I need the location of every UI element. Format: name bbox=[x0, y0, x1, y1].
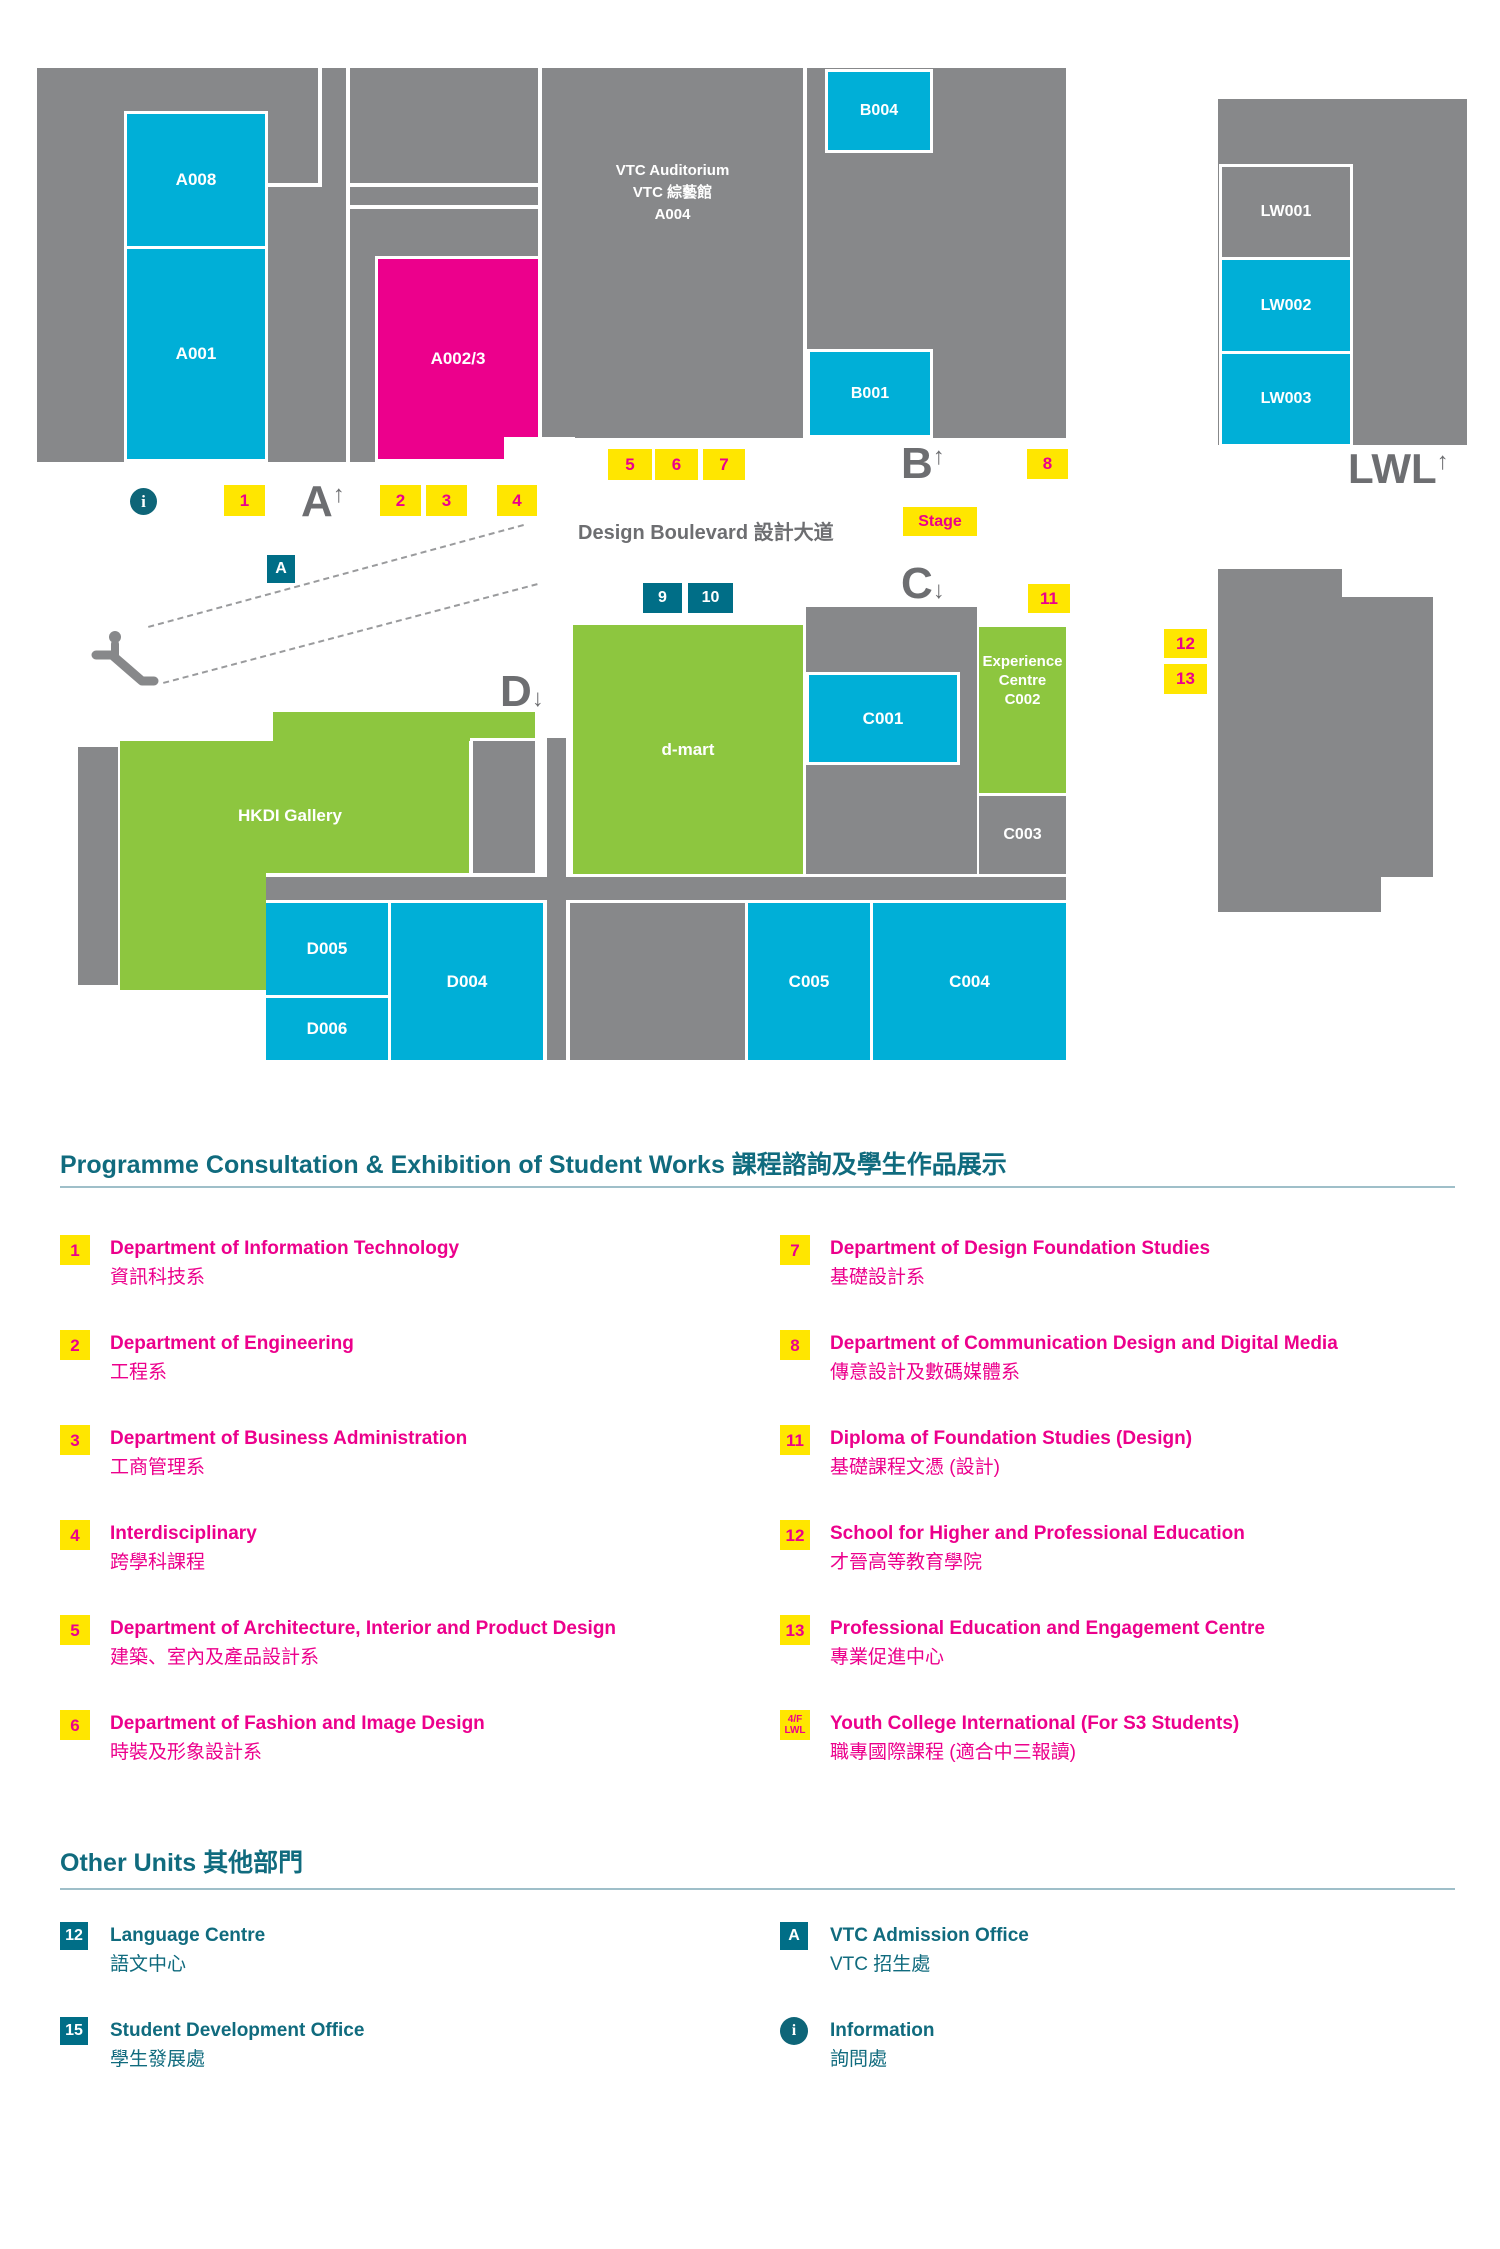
escalator-path-line bbox=[148, 524, 524, 628]
legend-item-name-en: Information bbox=[830, 2018, 1480, 2044]
wall-gap bbox=[538, 68, 542, 438]
map-marker-13: 13 bbox=[1164, 664, 1207, 694]
legend-item: 11 Diploma of Foundation Studies (Design… bbox=[780, 1425, 1480, 1520]
legend-item-name-zh: 建築、室內及產品設計系 bbox=[110, 1645, 760, 1671]
legend-item-name-zh: 基礎課程文憑 (設計) bbox=[830, 1455, 1480, 1481]
room-lw002: LW002 bbox=[1222, 260, 1350, 351]
room-c001: C001 bbox=[809, 675, 957, 762]
room-c002-experience-centre: Experience Centre C002 bbox=[979, 627, 1066, 793]
legend-item-badge: 15 bbox=[60, 2017, 88, 2045]
legend-item-name-en: Department of Communication Design and D… bbox=[830, 1331, 1480, 1357]
legend-item: i Information 詢問處 bbox=[780, 2017, 1480, 2112]
map-marker-5: 5 bbox=[608, 449, 652, 480]
corridor-horizontal bbox=[266, 877, 1066, 900]
map-marker-7: 7 bbox=[703, 449, 745, 480]
legend-item: 13 Professional Education and Engagement… bbox=[780, 1615, 1480, 1710]
legend-item-badge: 2 bbox=[60, 1330, 90, 1360]
legend-item: 8 Department of Communication Design and… bbox=[780, 1330, 1480, 1425]
map-marker-1: 1 bbox=[224, 485, 265, 516]
legend-item-name-en: Youth College International (For S3 Stud… bbox=[830, 1711, 1480, 1737]
building-block-lower-right bbox=[1342, 597, 1433, 877]
legend-item-name-zh: 才晉高等教育學院 bbox=[830, 1550, 1480, 1576]
room-dmart: d-mart bbox=[573, 625, 803, 874]
map-marker-9: 9 bbox=[643, 583, 682, 613]
legend-item-name-zh: 工程系 bbox=[110, 1360, 760, 1386]
legend-item-name-en: Professional Education and Engagement Ce… bbox=[830, 1616, 1480, 1642]
legend-item: 3 Department of Business Administration … bbox=[60, 1425, 760, 1520]
room-c004: C004 bbox=[873, 903, 1066, 1060]
section-rule bbox=[60, 1888, 1455, 1890]
room-lw003: LW003 bbox=[1222, 354, 1350, 444]
legend-item: 2 Department of Engineering 工程系 bbox=[60, 1330, 760, 1425]
legend-item-name-zh: 語文中心 bbox=[110, 1952, 760, 1978]
legend-item-badge: 4/FLWL bbox=[780, 1710, 810, 1740]
legend-item-name-zh: 傳意設計及數碼媒體系 bbox=[830, 1360, 1480, 1386]
legend-column-right: 7 Department of Design Foundation Studie… bbox=[780, 1235, 1480, 1805]
room-a002-3: A002/3 bbox=[378, 259, 538, 459]
legend-item-badge: 4 bbox=[60, 1520, 90, 1550]
other-units-column-left: 12 Language Centre 語文中心 15 Student Devel… bbox=[60, 1922, 760, 2112]
legend-item-name-en: VTC Admission Office bbox=[830, 1923, 1480, 1949]
legend-item-name-zh: 專業促進中心 bbox=[830, 1645, 1480, 1671]
room-c003: C003 bbox=[979, 796, 1066, 874]
other-units-column-right: A VTC Admission Office VTC 招生處 i Informa… bbox=[780, 1922, 1480, 2112]
legend-item: 12 School for Higher and Professional Ed… bbox=[780, 1520, 1480, 1615]
legend-item: 4/FLWL Youth College International (For … bbox=[780, 1710, 1480, 1805]
legend-item: 5 Department of Architecture, Interior a… bbox=[60, 1615, 760, 1710]
hkdi-gallery-shape bbox=[273, 712, 535, 741]
map-marker-8: 8 bbox=[1027, 449, 1068, 479]
up-arrow-icon: ↑ bbox=[333, 481, 345, 508]
map-marker-a: A bbox=[267, 555, 295, 583]
legend-item-name-zh: VTC 招生處 bbox=[830, 1952, 1480, 1978]
room-label-c002: Experience Centre C002 bbox=[979, 652, 1066, 709]
room-lw001: LW001 bbox=[1222, 167, 1350, 257]
legend-item-name-en: Department of Information Technology bbox=[110, 1236, 760, 1262]
entrance-notch bbox=[504, 437, 575, 466]
legend-item-name-zh: 職專國際課程 (適合中三報讀) bbox=[830, 1740, 1480, 1766]
room-d004: D004 bbox=[391, 903, 543, 1060]
campus-floor-plan-page: HKDI Gallery d-mart C001 Experience Cent… bbox=[0, 0, 1500, 2249]
legend-item-name-zh: 時裝及形象設計系 bbox=[110, 1740, 760, 1766]
legend-item-badge: 1 bbox=[60, 1235, 90, 1265]
hkdi-gallery-shape bbox=[120, 873, 266, 990]
room-b004: B004 bbox=[828, 72, 930, 150]
legend-item-name-zh: 工商管理系 bbox=[110, 1455, 760, 1481]
building-block-lower-right bbox=[1218, 569, 1342, 912]
design-boulevard-label: Design Boulevard 設計大道 bbox=[578, 516, 834, 545]
escalator-path-line bbox=[163, 583, 538, 684]
entrance-letter-d: D↓ bbox=[500, 670, 544, 714]
legend-item-badge: 6 bbox=[60, 1710, 90, 1740]
stage-marker: Stage bbox=[903, 507, 977, 536]
legend-item: 15 Student Development Office 學生發展處 bbox=[60, 2017, 760, 2112]
legend-item-name-en: Student Development Office bbox=[110, 2018, 760, 2044]
map-marker-6: 6 bbox=[655, 449, 698, 480]
legend-item-name-en: Department of Fashion and Image Design bbox=[110, 1711, 760, 1737]
map-marker-11: 11 bbox=[1028, 584, 1070, 613]
building-strip-left bbox=[78, 747, 118, 985]
wall-gap bbox=[350, 205, 540, 209]
legend-item-badge: i bbox=[780, 2017, 808, 2045]
legend-item-badge: 11 bbox=[780, 1425, 810, 1455]
room-b001: B001 bbox=[810, 352, 930, 435]
gray-block-central bbox=[570, 903, 745, 1060]
down-arrow-icon: ↓ bbox=[933, 577, 945, 604]
legend-item-name-zh: 跨學科課程 bbox=[110, 1550, 760, 1576]
legend-item-badge: 12 bbox=[60, 1922, 88, 1950]
building-block-lower-right bbox=[1342, 877, 1381, 912]
escalator-icon bbox=[88, 628, 160, 690]
legend-item: 1 Department of Information Technology 資… bbox=[60, 1235, 760, 1330]
room-a001: A001 bbox=[127, 249, 265, 459]
section-title-programme-consultation: Programme Consultation & Exhibition of S… bbox=[60, 1145, 1007, 1181]
room-a008: A008 bbox=[127, 114, 265, 246]
room-c005: C005 bbox=[748, 903, 870, 1060]
wall-gap bbox=[350, 183, 540, 187]
legend-item-name-zh: 詢問處 bbox=[830, 2047, 1480, 2073]
wall-gap bbox=[265, 183, 322, 187]
information-icon: i bbox=[130, 488, 157, 515]
entrance-letter-lwl: LWL↑ bbox=[1348, 448, 1449, 490]
legend-item: 4 Interdisciplinary 跨學科課程 bbox=[60, 1520, 760, 1615]
room-d005: D005 bbox=[266, 903, 388, 995]
legend-column-left: 1 Department of Information Technology 資… bbox=[60, 1235, 760, 1805]
legend-item-name-zh: 學生發展處 bbox=[110, 2047, 760, 2073]
legend-item-name-zh: 資訊科技系 bbox=[110, 1265, 760, 1291]
legend-item: A VTC Admission Office VTC 招生處 bbox=[780, 1922, 1480, 2017]
entrance-letter-b: B↑ bbox=[901, 442, 945, 486]
room-label-gallery: HKDI Gallery bbox=[150, 806, 430, 826]
legend-item: 7 Department of Design Foundation Studie… bbox=[780, 1235, 1480, 1330]
section-title-other-units: Other Units 其他部門 bbox=[60, 1843, 303, 1879]
wall-gap bbox=[318, 68, 322, 187]
wall-gap bbox=[346, 68, 350, 462]
legend-item-name-en: Diploma of Foundation Studies (Design) bbox=[830, 1426, 1480, 1452]
legend-item-name-en: School for Higher and Professional Educa… bbox=[830, 1521, 1480, 1547]
map-marker-2: 2 bbox=[380, 485, 421, 516]
legend-item-badge: 7 bbox=[780, 1235, 810, 1265]
legend-item: 6 Department of Fashion and Image Design… bbox=[60, 1710, 760, 1805]
legend-item: 12 Language Centre 語文中心 bbox=[60, 1922, 760, 2017]
legend-item-badge: A bbox=[780, 1922, 808, 1950]
entrance-letter-a: A↑ bbox=[301, 480, 345, 524]
map-marker-4: 4 bbox=[497, 485, 537, 516]
legend-item-name-zh: 基礎設計系 bbox=[830, 1265, 1480, 1291]
legend-item-name-en: Language Centre bbox=[110, 1923, 760, 1949]
legend-item-badge: 3 bbox=[60, 1425, 90, 1455]
entrance-letter-c: C↓ bbox=[901, 562, 945, 606]
legend-item-name-en: Interdisciplinary bbox=[110, 1521, 760, 1547]
map-marker-3: 3 bbox=[426, 485, 467, 516]
map-marker-10: 10 bbox=[688, 583, 733, 613]
wall-gap bbox=[803, 68, 807, 438]
legend-item-badge: 13 bbox=[780, 1615, 810, 1645]
map-marker-12: 12 bbox=[1164, 629, 1207, 658]
floor-plan-map: HKDI Gallery d-mart C001 Experience Cent… bbox=[0, 0, 1500, 1080]
room-d006: D006 bbox=[266, 998, 388, 1060]
legend-item-badge: 12 bbox=[780, 1520, 810, 1550]
gray-room-in-gallery bbox=[473, 741, 535, 873]
legend-item-name-en: Department of Engineering bbox=[110, 1331, 760, 1357]
legend-item-badge: 8 bbox=[780, 1330, 810, 1360]
room-label-auditorium: VTC Auditorium VTC 綜藝館 A004 bbox=[542, 160, 803, 226]
up-arrow-icon: ↑ bbox=[1437, 448, 1449, 475]
legend-item-name-en: Department of Design Foundation Studies bbox=[830, 1236, 1480, 1262]
down-arrow-icon: ↓ bbox=[532, 685, 544, 712]
up-arrow-icon: ↑ bbox=[933, 443, 945, 470]
legend-item-name-en: Department of Architecture, Interior and… bbox=[110, 1616, 760, 1642]
legend-item-badge: 5 bbox=[60, 1615, 90, 1645]
section-rule bbox=[60, 1186, 1455, 1188]
legend-item-name-en: Department of Business Administration bbox=[110, 1426, 760, 1452]
